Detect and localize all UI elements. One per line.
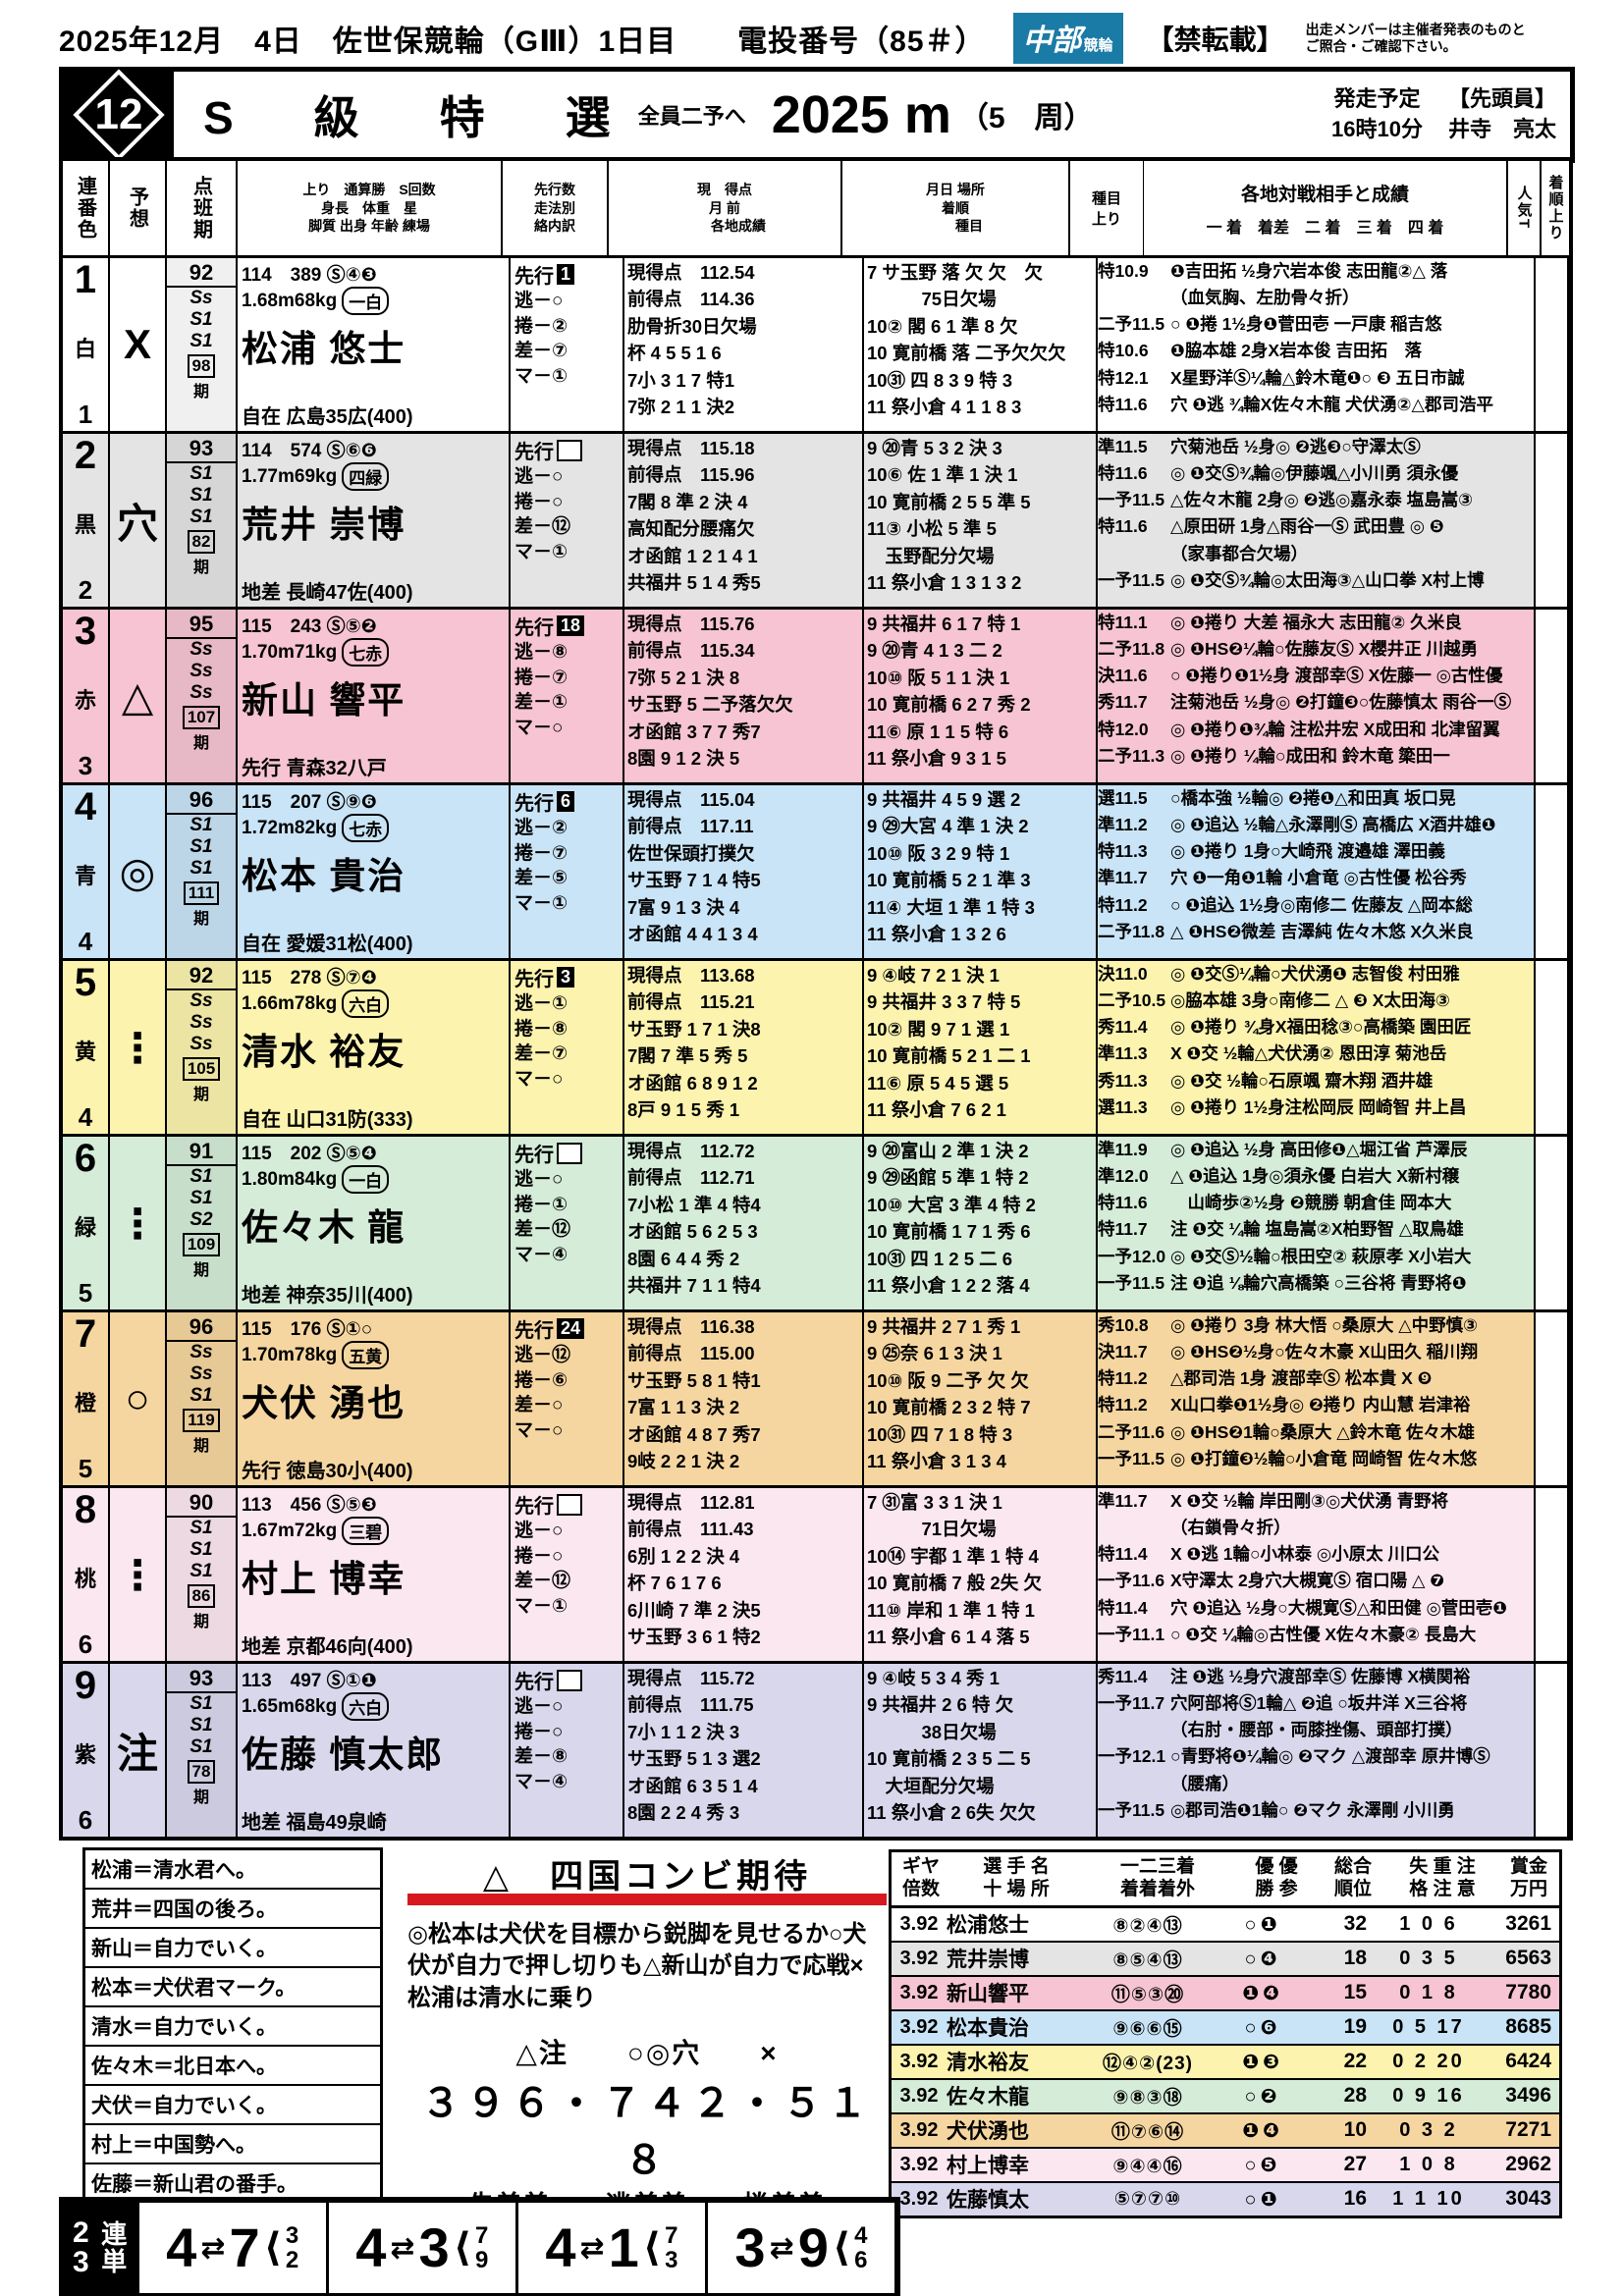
rider-tactic-line: 差－⑫ (514, 1569, 619, 1594)
rider-body-line: 1.66m78kg六白 (242, 989, 505, 1018)
opponent-lap-time: 一予12.0 (1098, 1244, 1170, 1270)
opponent-line: 一予11.5◎ ❶交Ⓢ¾輪◎太田海③△山口拳 X村上博 (1098, 567, 1534, 594)
opponent-lap-time: 一予11.7 (1098, 1690, 1170, 1717)
rider-class: Ss (189, 661, 212, 682)
rider-frame-cell: 5黄4 (63, 961, 110, 1134)
opponent-line: 特11.3◎ ❶捲り 1身○大崎飛 渡邉雄 澤田義 (1098, 838, 1534, 865)
rider-tactic-line: 差－⑤ (514, 866, 619, 891)
rider-profile-cell: 114 574 Ⓢ⑥❻1.77m69kg四緑荒井 崇博地差 長崎47佐(400) (238, 434, 511, 607)
rider-class: S1 (189, 1166, 212, 1188)
rentan-label-number: 3 (73, 2248, 89, 2277)
standings-overall-rank: 19 (1304, 2015, 1375, 2039)
opponent-text: X ❶交 ½輪△犬伏湧② 恩田淳 菊池岳 (1170, 1041, 1534, 1067)
opponent-text: （家事都合欠場） (1170, 541, 1534, 567)
senko-count: 24 (557, 1318, 584, 1339)
rider-score-line: サ玉野 1 7 1 決8 (627, 1016, 859, 1042)
opponent-line: 秀11.3◎ ❶交 ½輪○石原颯 齋木翔 酒井雄 (1098, 1068, 1534, 1095)
standings-gear: 3.92 (892, 1948, 947, 1970)
rider-style-line: 地差 神奈35川(400) (242, 1279, 505, 1308)
rider-class: S1 (189, 1693, 212, 1715)
rider-comment-line: 村上＝中国勢へ。 (85, 2125, 380, 2164)
opponent-text: △郡司浩 1身 渡部幸Ⓢ 松本貴 X ❾ (1170, 1365, 1534, 1392)
opponent-text: △ ❶HS❷微差 吉澤純 佐々木悠 X久米良 (1170, 919, 1534, 945)
rider-term: 111 (184, 881, 220, 905)
rider-waku-number: 4 (79, 929, 92, 954)
rider-style-line: 地差 京都46向(400) (242, 1630, 505, 1659)
opponent-lap-time: 特12.1 (1098, 365, 1170, 392)
standings-body: 3.92松浦悠士⑧②④⑬○❶321 0 632613.92荒井崇博⑧⑤④⑬○❹1… (892, 1908, 1559, 2216)
race-distance: 2025 m (772, 84, 951, 145)
rider-star: 五黄 (342, 1341, 389, 1369)
standings-row: 3.92佐々木龍⑨⑧③⑱○❷280 9 163496 (892, 2080, 1559, 2114)
rider-score-line: 現得点 115.04 (627, 786, 859, 813)
rider-term-label: 期 (193, 1256, 209, 1280)
rider-color-name: 黄 (75, 1041, 96, 1063)
opponent-text: ○ ❶捲 1½身❶菅田壱 一戸康 稲吉悠 (1170, 311, 1534, 338)
rider-profile-cell: 113 497 Ⓢ①❶1.65m68kg六白佐藤 慎太郎地差 福島49泉崎 (238, 1664, 511, 1837)
rider-result-line: 10 寛前橋 2 3 2 特 7 (867, 1394, 1093, 1420)
rider-result-line: 11⑥ 原 5 4 5 選 5 (867, 1070, 1093, 1096)
rider-rank-cell: 96SsSsS1119期 (167, 1312, 238, 1485)
rider-score-line: オ函館 5 6 2 5 3 (627, 1218, 859, 1245)
rider-career-line: 115 207 Ⓢ⑨❻ (242, 787, 505, 814)
chubu-keirin-logo: 中部 競輪 (1013, 13, 1123, 64)
opponent-line: 決11.6○ ❶捲り❶1½身 渡部幸Ⓢ X佐藤一 ◎古性優 (1098, 663, 1534, 689)
standings-wins: ❶❹ (1221, 2118, 1304, 2143)
opponent-text: ○ ❶交 ¼輪◎古性優 X佐々木豪② 長島大 (1170, 1622, 1534, 1648)
opponent-text: ◎ ❶捲り ¼輪○成田和 鈴木竜 簗田一 (1170, 743, 1534, 770)
rider-senko-line: 先行18 (514, 612, 619, 640)
standings-prize: 7271 (1483, 2118, 1559, 2142)
opponent-line: 準11.2◎ ❶追込 ½輪△永澤剛Ⓢ 高橋広 X酒井雄❶ (1098, 812, 1534, 838)
race-laps: （5 周） (959, 93, 1094, 136)
rentan-thirds: 32 (286, 2223, 298, 2272)
rider-score-line: 杯 4 5 5 1 6 (627, 340, 859, 366)
rider-class: Ss (189, 639, 212, 661)
standings-rider-name: 松浦悠士 (947, 1909, 1074, 1939)
rider-prediction-mark: 注 (110, 1664, 167, 1837)
angle-bracket-icon: ⟨ (454, 2225, 471, 2270)
standings-penalties: 0 9 16 (1375, 2085, 1483, 2108)
opponent-lap-time: 準11.5 (1098, 434, 1170, 460)
prediction-title: △ 四国コンビ期待 (475, 1849, 819, 1899)
rider-score-line: 7閣 7 準 5 秀 5 (627, 1042, 859, 1069)
rider-result-line: 9 共福井 2 6 特 欠 (867, 1691, 1093, 1718)
start-time: 発走予定 16時10分 (1331, 84, 1423, 145)
rider-result-line: 75日欠場 (867, 286, 1093, 312)
prediction-body: ◎松本は犬伏を目標から鋭脚を見せるか○犬伏が自力で押し切りも△新山が自力で応戦×… (407, 1919, 887, 2014)
rider-frame-cell: 2黒2 (63, 434, 110, 607)
rider-ninki-cell (1536, 610, 1569, 782)
senko-label: 先行 (514, 1666, 554, 1694)
standings-wins: ○❶ (1221, 1912, 1304, 1937)
opponent-lap-time (1098, 285, 1170, 311)
opponent-lap-time: 準11.9 (1098, 1137, 1170, 1163)
rider-tactic-line: 捲－○ (514, 490, 619, 515)
rider-tactics-cell: 先行3逃－①捲－⑧差－⑦マ－○ (511, 961, 624, 1134)
standings-row: 3.92松浦悠士⑧②④⑬○❶321 0 63261 (892, 1908, 1559, 1943)
rider-term: 107 (183, 706, 220, 729)
senko-count (557, 1670, 582, 1691)
senko-label: 先行 (514, 787, 554, 816)
rider-class: S1 (189, 815, 212, 836)
rider-points: 91 (167, 1139, 236, 1166)
rider-result-line: 9 ㉙函館 5 準 1 特 2 (867, 1164, 1093, 1191)
rider-results-cell: 7 ㉛富 3 3 1 決 1 71日欠場10⑭ 宇都 1 準 1 特 410 寛… (864, 1488, 1098, 1661)
opponent-line: （家事都合欠場） (1098, 541, 1534, 567)
rider-name: 犬伏 湧也 (242, 1373, 505, 1426)
opponent-text: ○ ❶捲り❶1½身 渡部幸Ⓢ X佐藤一 ◎古性優 (1170, 663, 1534, 689)
rider-comment-line: 清水＝自力でいく。 (85, 2007, 380, 2047)
rider-tactic-line: 捲－⑧ (514, 1017, 619, 1042)
standings-record: ⑨⑥⑥⑮ (1074, 2014, 1221, 2041)
rider-score-line: 8園 6 4 4 秀 2 (627, 1246, 859, 1272)
opponent-lap-time: 準11.2 (1098, 812, 1170, 838)
standings-header-cell: 選 手 名 十 場 所 (950, 1852, 1082, 1905)
rider-points: 92 (167, 963, 236, 990)
rider-body-line: 1.67m72kg三碧 (242, 1517, 505, 1545)
opponent-text: ◎ ❶HS❷¼輪○佐藤友Ⓢ X櫻井正 川越勇 (1170, 636, 1534, 663)
opponent-text: ◎脇本雄 3身○南修二 △ ❸ X太田海③ (1170, 988, 1534, 1014)
rider-score-line: 8園 9 1 2 決 5 (627, 745, 859, 772)
rider-prediction-mark: X (110, 258, 167, 431)
rider-score-line: 現得点 116.38 (627, 1313, 859, 1340)
rider-score-cell: 現得点 116.38前得点 115.00サ玉野 5 8 1 特17富 1 1 3… (624, 1312, 864, 1485)
opponent-text: ◎ ❶打鐘❸½輪○小倉竜 岡崎智 佐々木悠 (1170, 1446, 1534, 1472)
rider-score-line: 7弥 5 2 1 決 8 (627, 665, 859, 691)
standings-rider-name: 新山響平 (947, 1978, 1074, 2007)
opponent-line: 秀10.8◎ ❶捲り 3身 林大悟 ○桑原大 △中野慎③ (1098, 1312, 1534, 1339)
senko-label: 先行 (514, 1490, 554, 1519)
rider-class: S1 (189, 1561, 212, 1582)
rider-score-cell: 現得点 112.54前得点 114.36肋骨折30日欠場杯 4 5 5 1 67… (624, 258, 864, 431)
opponent-text: △佐々木龍 2身◎ ❷逃◎嘉永泰 塩島嵩③ (1170, 487, 1534, 513)
rider-score-cell: 現得点 115.04前得点 117.11佐世保頭打撲欠サ玉野 7 1 4 特57… (624, 785, 864, 958)
rentan-group: 4⇄1⟨73 (518, 2203, 708, 2293)
opponent-text: ◎ ❶交 ½輪○石原颯 齋木翔 酒井雄 (1170, 1068, 1534, 1095)
rider-height-weight: 1.70m71kg (242, 642, 337, 664)
rider-opponents-cell: 秀10.8◎ ❶捲り 3身 林大悟 ○桑原大 △中野慎③決11.7◎ ❶HS❷½… (1098, 1312, 1536, 1485)
rider-class: S1 (189, 836, 212, 858)
standings-gear: 3.92 (892, 2085, 947, 2108)
standings-gear: 3.92 (892, 1982, 947, 2004)
rider-opponents-cell: 準11.9◎ ❶追込 ½身 高田修❶△堀江省 芦澤辰準12.0△ ❶追込 1身◎… (1098, 1137, 1536, 1309)
opponent-line: 準11.5穴菊池岳 ½身◎ ❷逃❸○守澤太Ⓢ (1098, 434, 1534, 460)
rentan-groups: 4⇄7⟨324⇄3⟨794⇄1⟨733⇄9⟨46 (139, 2203, 894, 2293)
rider-score-line: 7富 1 1 3 決 2 (627, 1394, 859, 1420)
opponent-text: ❶脇本雄 2身X岩本俊 吉田拓 落 (1170, 338, 1534, 364)
rider-score-line: 7閣 8 準 2 決 4 (627, 489, 859, 515)
rider-result-line: 11⑩ 岸和 1 準 1 特 1 (867, 1597, 1093, 1624)
rider-score-line: 8園 2 2 4 秀 3 (627, 1799, 859, 1826)
opponent-lap-time: 一予11.5 (1098, 1270, 1170, 1297)
opponent-lap-time: 特11.4 (1098, 1595, 1170, 1622)
rider-tactic-line: 捲－⑥ (514, 1368, 619, 1394)
rider-frame-cell: 7橙5 (63, 1312, 110, 1485)
rider-tactic-line: 逃－○ (514, 289, 619, 314)
senko-count (557, 440, 582, 461)
rentan-group: 4⇄3⟨79 (329, 2203, 518, 2293)
rider-career-line: 115 202 Ⓢ⑤❹ (242, 1139, 505, 1165)
rider-tactics-cell: 先行24逃－⑫捲－⑥差－○マ－○ (511, 1312, 624, 1485)
rider-score-line: オ函館 4 4 1 3 4 (627, 921, 859, 947)
rider-profile-cell: 115 202 Ⓢ⑤❹1.80m84kg一白佐々木 龍地差 神奈35川(400) (238, 1137, 511, 1309)
rider-rank-cell: 92SsSsSs105期 (167, 961, 238, 1134)
rider-score-line: 現得点 115.18 (627, 435, 859, 461)
race-number-badge: 12 (64, 72, 174, 158)
rider-class: S1 (189, 331, 212, 352)
rider-row: 5黄4⋮92SsSsSs105期115 278 Ⓢ⑦❹1.66m78kg六白清水… (63, 961, 1569, 1137)
rider-tactic-line: 差－○ (514, 1393, 619, 1418)
rider-score-line: 7小 1 1 2 決 3 (627, 1719, 859, 1745)
rider-career-line: 114 389 Ⓢ④❸ (242, 260, 505, 287)
senko-count: 1 (557, 264, 574, 285)
opponent-line: 特11.2○ ❶追込 1½身◎南修二 佐藤友 △岡本総 (1098, 892, 1534, 919)
standings-penalties: 1 0 6 (1375, 1913, 1483, 1936)
rider-points: 95 (167, 612, 236, 639)
rider-score-line: 7小 3 1 7 特1 (627, 367, 859, 394)
rentan-label-numbers: 23 (73, 2218, 89, 2277)
opponent-text: ◎ ❶捲り 1½身注松岡辰 岡崎智 井上昌 (1170, 1095, 1534, 1121)
rider-result-line: 11 祭小倉 1 2 2 落 4 (867, 1272, 1093, 1299)
opponent-text: ◎ ❶追込 ½身 高田修❶△堀江省 芦澤辰 (1170, 1137, 1534, 1163)
rider-car-number: 1 (75, 262, 96, 297)
rider-term-label: 期 (193, 1608, 209, 1631)
opponent-line: （右鎖骨々折） (1098, 1515, 1534, 1541)
opponent-line: 特10.9❶吉田拓 ½身穴岩本俊 志田龍②△ 落 (1098, 258, 1534, 285)
opponent-lap-time: 二予10.5 (1098, 988, 1170, 1014)
opponent-line: 二予11.8△ ❶HS❷微差 吉澤純 佐々木悠 X久米良 (1098, 919, 1534, 945)
rider-rank-cell: 91S1S1S2109期 (167, 1137, 238, 1309)
opponent-lap-time: 一予11.1 (1098, 1622, 1170, 1648)
rentan-first: 4 (545, 2220, 575, 2275)
rider-senko-line: 先行 (514, 436, 619, 464)
program-title: 2025年12月 4日 佐世保競輪（GⅢ）1日目 電投番号（85＃） (59, 17, 986, 60)
rider-score-line: 現得点 112.81 (627, 1489, 859, 1516)
standings-penalties: 0 5 17 (1375, 2016, 1483, 2039)
rider-row: 9紫6注93S1S1S178期113 497 Ⓢ①❶1.65m68kg六白佐藤 … (63, 1664, 1569, 1837)
rider-row: 8桃6⋮90S1S1S186期113 456 Ⓢ⑤❸1.67m72kg三碧村上 … (63, 1488, 1569, 1664)
rider-result-line: 7 サ玉野 落 欠 欠 欠 (867, 259, 1093, 286)
rider-result-line: 10⑭ 宇都 1 準 1 特 4 (867, 1543, 1093, 1570)
rider-result-line: 9 共福井 6 1 7 特 1 (867, 611, 1093, 637)
rider-body-line: 1.65m68kg六白 (242, 1692, 505, 1721)
rider-result-line: 11 祭小倉 1 3 1 3 2 (867, 569, 1093, 596)
rider-tactic-line: マ－○ (514, 1418, 619, 1444)
opponent-text: 注 ❶追 ⅛輪穴高橋築 ○三谷将 青野将❶ (1170, 1270, 1534, 1297)
rider-color-name: 黒 (75, 514, 96, 536)
rider-result-line: 9 共福井 3 3 7 特 5 (867, 988, 1093, 1015)
rider-tactic-line: 差－⑦ (514, 1041, 619, 1067)
standings-header-cell: 失 重 注 格 注 意 (1386, 1852, 1498, 1905)
rider-waku-number: 6 (79, 1631, 92, 1657)
opponent-line: 特11.6◎ ❶交Ⓢ¾輪◎伊藤颯△小川勇 須永優 (1098, 460, 1534, 487)
rider-result-line: 10⑩ 阪 9 二予 欠 欠 (867, 1367, 1093, 1394)
opponent-lap-time: 二予11.8 (1098, 636, 1170, 663)
rentan-third-top: 7 (665, 2223, 677, 2248)
standings-overall-rank: 18 (1304, 1947, 1375, 1970)
rider-tactic-line: マ－○ (514, 1067, 619, 1093)
rider-tactics-cell: 先行逃－○捲－○差－⑫マ－① (511, 434, 624, 607)
rider-tactic-line: 捲－○ (514, 1544, 619, 1570)
rider-row: 7橙5○96SsSsS1119期115 176 Ⓢ①○1.70m78kg五黄犬伏… (63, 1312, 1569, 1488)
rider-score-line: 前得点 115.21 (627, 988, 859, 1015)
opponent-line: 特11.2△郡司浩 1身 渡部幸Ⓢ 松本貴 X ❾ (1098, 1365, 1534, 1392)
rider-score-line: 佐世保頭打撲欠 (627, 840, 859, 867)
rider-career-line: 113 497 Ⓢ①❶ (242, 1666, 505, 1692)
rider-score-line: オ函館 3 7 7 秀7 (627, 719, 859, 745)
rider-class: Ss (189, 682, 212, 704)
opponent-text: ◎ ❶捲り 1身○大崎飛 渡邉雄 澤田義 (1170, 838, 1534, 865)
rider-term-label: 期 (193, 1432, 209, 1456)
standings-rider-name: 佐々木龍 (947, 2081, 1074, 2110)
header-score: 現 得点 月 前 各地成績 (609, 161, 842, 255)
rider-score-line: 9岐 2 2 1 決 2 (627, 1448, 859, 1474)
opponent-lap-time: 秀11.7 (1098, 689, 1170, 716)
rider-ninki-cell (1536, 258, 1569, 431)
opponent-line: 一予11.5◎郡司浩❶1輪○ ❷マク 永澤剛 小川勇 (1098, 1797, 1534, 1824)
rider-score-line: 7弥 2 1 1 決2 (627, 394, 859, 420)
opponent-line: 一予11.5注 ❶追 ⅛輪穴高橋築 ○三谷将 青野将❶ (1098, 1270, 1534, 1297)
opponent-lap-time: 準12.0 (1098, 1163, 1170, 1190)
opponent-lap-time: 決11.7 (1098, 1339, 1170, 1365)
rider-score-line: 現得点 115.76 (627, 611, 859, 637)
rider-term-label: 期 (193, 378, 209, 401)
rider-name: 新山 響平 (242, 670, 505, 723)
rider-opponents-cell: 特11.1◎ ❶捲り 大差 福永大 志田龍② 久米良二予11.8◎ ❶HS❷¼輪… (1098, 610, 1536, 782)
rider-results-cell: 9 共福井 4 5 9 選 29 ㉙大宮 4 準 1 決 210⑩ 阪 3 2 … (864, 785, 1098, 958)
race-subtitle: 全員二予へ (638, 99, 746, 131)
rider-star: 七赤 (342, 638, 389, 667)
rentan-group: 3⇄9⟨46 (708, 2203, 894, 2293)
opponent-text: ◎ ❶交Ⓢ¼輪○犬伏湧❶ 志智俊 村田雅 (1170, 961, 1534, 988)
rider-star: 六白 (342, 1692, 389, 1721)
standings-penalties: 0 3 5 (1375, 1948, 1483, 1970)
standings-record: ⑨⑧③⑱ (1074, 2083, 1221, 2109)
rider-star: 七赤 (342, 814, 389, 842)
rider-class: S1 (189, 1385, 212, 1407)
rider-score-line: オ函館 6 8 9 1 2 (627, 1070, 859, 1096)
opponent-text: △ ❶追込 1身◎須永優 白岩大 X新村穣 (1170, 1163, 1534, 1190)
rider-tactic-line: マ－④ (514, 1770, 619, 1795)
standings-rider-name: 村上博幸 (947, 2150, 1074, 2179)
rentan-label-number: 2 (73, 2218, 89, 2248)
rider-points: 93 (167, 1666, 236, 1693)
rider-row: 2黒2穴93S1S1S182期114 574 Ⓢ⑥❻1.77m69kg四緑荒井 … (63, 434, 1569, 610)
standings-penalties: 0 2 20 (1375, 2051, 1483, 2073)
rider-tactic-line: 捲－② (514, 314, 619, 340)
rider-result-line: 11 祭小倉 1 3 2 6 (867, 921, 1093, 947)
standings-record: ⑪⑦⑥⑭ (1074, 2117, 1221, 2144)
swap-arrows-icon: ⇄ (579, 2231, 604, 2266)
standings-row: 3.92新山響平⑪⑤③⑳❶❹150 1 87780 (892, 1977, 1559, 2011)
opponent-text: 山崎歩②½身 ❷競勝 朝倉佳 岡本大 (1170, 1190, 1534, 1216)
rider-comment-line: 松本＝犬伏君マーク。 (85, 1968, 380, 2007)
opponent-text: 穴 ❶追込 ½身○大槻寛Ⓢ△和田健 ◎菅田壱❶ (1170, 1595, 1534, 1622)
rider-frame-cell: 1白1 (63, 258, 110, 431)
rider-color-name: 緑 (75, 1217, 96, 1239)
rider-tactic-line: マ－① (514, 364, 619, 390)
opponent-lap-time: 準11.3 (1098, 1041, 1170, 1067)
opponent-lap-time: 特11.6 (1098, 513, 1170, 540)
rider-class: S1 (189, 1736, 212, 1758)
standings-prize: 3496 (1483, 2084, 1559, 2108)
rider-height-weight: 1.80m84kg (242, 1169, 337, 1191)
rider-tactic-line: 差－⑦ (514, 339, 619, 364)
rider-score-cell: 現得点 113.68前得点 115.21サ玉野 1 7 1 決87閣 7 準 5… (624, 961, 864, 1134)
opponent-lap-time: 特12.0 (1098, 717, 1170, 743)
rider-prediction-mark: ⋮ (110, 961, 167, 1134)
opponent-line: 一予11.5△佐々木龍 2身◎ ❷逃◎嘉永泰 塩島嵩③ (1098, 487, 1534, 513)
opponent-lap-time: 選11.5 (1098, 785, 1170, 812)
senko-count: 18 (557, 615, 584, 636)
rider-result-line: 38日欠場 (867, 1719, 1093, 1745)
standings-table: ギヤ 倍数選 手 名 十 場 所一二三着 着着着外優 優 勝 参総合 順位失 重… (889, 1849, 1562, 2218)
rider-senko-line: 先行1 (514, 260, 619, 289)
rider-waku-number: 1 (79, 401, 92, 427)
senko-label: 先行 (514, 963, 554, 991)
rider-results-cell: 9 ④岐 7 2 1 決 19 共福井 3 3 7 特 510② 閣 9 7 1… (864, 961, 1098, 1134)
rider-result-line: 11 祭小倉 7 6 2 1 (867, 1096, 1093, 1123)
senko-label: 先行 (514, 1139, 554, 1167)
rider-frame-cell: 3赤3 (63, 610, 110, 782)
rider-result-line: 7 ㉛富 3 3 1 決 1 (867, 1489, 1093, 1516)
header-results: 月日 場所 着順 種目 (842, 161, 1070, 255)
rider-color-name: 白 (75, 339, 96, 360)
rider-frame-cell: 6緑5 (63, 1137, 110, 1309)
rider-class: Ss (189, 1012, 212, 1034)
rider-comment-line: 新山＝自力でいく。 (85, 1929, 380, 1968)
opponent-line: 一予11.6X守澤太 2身穴大槻寛Ⓢ 宿口陽 △ ❼ (1098, 1568, 1534, 1594)
rider-score-line: 前得点 115.00 (627, 1340, 859, 1366)
opponent-line: 特12.1X星野洋Ⓢ¼輪△鈴木竜❶○ ❸ 五日市誠 (1098, 365, 1534, 392)
rider-score-line: 7富 9 1 3 決 4 (627, 894, 859, 921)
rider-score-line: サ玉野 3 6 1 特2 (627, 1624, 859, 1650)
standings-row: 3.92荒井崇博⑧⑤④⑬○❹180 3 56563 (892, 1943, 1559, 1977)
no-reprint-label: 【禁転載】 (1147, 19, 1284, 58)
rider-score-line: 肋骨折30日欠場 (627, 313, 859, 340)
opponent-lap-time: 秀10.8 (1098, 1312, 1170, 1339)
rider-ninki-cell (1536, 1664, 1569, 1837)
opponent-line: 特11.4穴 ❶追込 ½身○大槻寛Ⓢ△和田健 ◎菅田壱❶ (1098, 1595, 1534, 1622)
opponent-lap-time: 決11.6 (1098, 663, 1170, 689)
rider-color-name: 赤 (75, 690, 96, 712)
angle-bracket-icon: ⟨ (833, 2225, 850, 2270)
opponent-text: ◎郡司浩❶1輪○ ❷マク 永澤剛 小川勇 (1170, 1797, 1534, 1824)
rider-tactics-cell: 先行6逃－②捲－⑦差－⑤マ－① (511, 785, 624, 958)
opponent-line: （腰痛） (1098, 1771, 1534, 1797)
rentan-thirds: 46 (854, 2223, 867, 2272)
rider-score-line: 現得点 115.72 (627, 1665, 859, 1691)
standings-overall-rank: 28 (1304, 2084, 1375, 2108)
rider-senko-line: 先行6 (514, 787, 619, 816)
rider-class: S2 (189, 1209, 212, 1231)
standings-prize: 6424 (1483, 2050, 1559, 2073)
rider-color-name: 橙 (75, 1393, 96, 1415)
rider-tactic-line: マ－① (514, 1594, 619, 1620)
rider-rank-cell: 90S1S1S186期 (167, 1488, 238, 1661)
rentan-third-top: 3 (286, 2223, 298, 2248)
rider-score-line: サ玉野 5 8 1 特1 (627, 1367, 859, 1394)
opponent-lap-time: 二予11.5 (1098, 311, 1170, 338)
rider-class: S1 (189, 1188, 212, 1209)
rider-height-weight: 1.72m82kg (242, 818, 337, 839)
rider-result-line: 9 ⑳富山 2 準 1 決 2 (867, 1138, 1093, 1164)
rider-car-number: 7 (75, 1316, 96, 1352)
opponent-text: ◎ ❶捲り 大差 福永大 志田龍② 久米良 (1170, 610, 1534, 636)
prediction-section: △ 四国コンビ期待 ◎松本は犬伏を目標から鋭脚を見せるか○犬伏が自力で押し切りも… (407, 1849, 887, 2221)
header-yosou: 予想 (110, 161, 167, 255)
